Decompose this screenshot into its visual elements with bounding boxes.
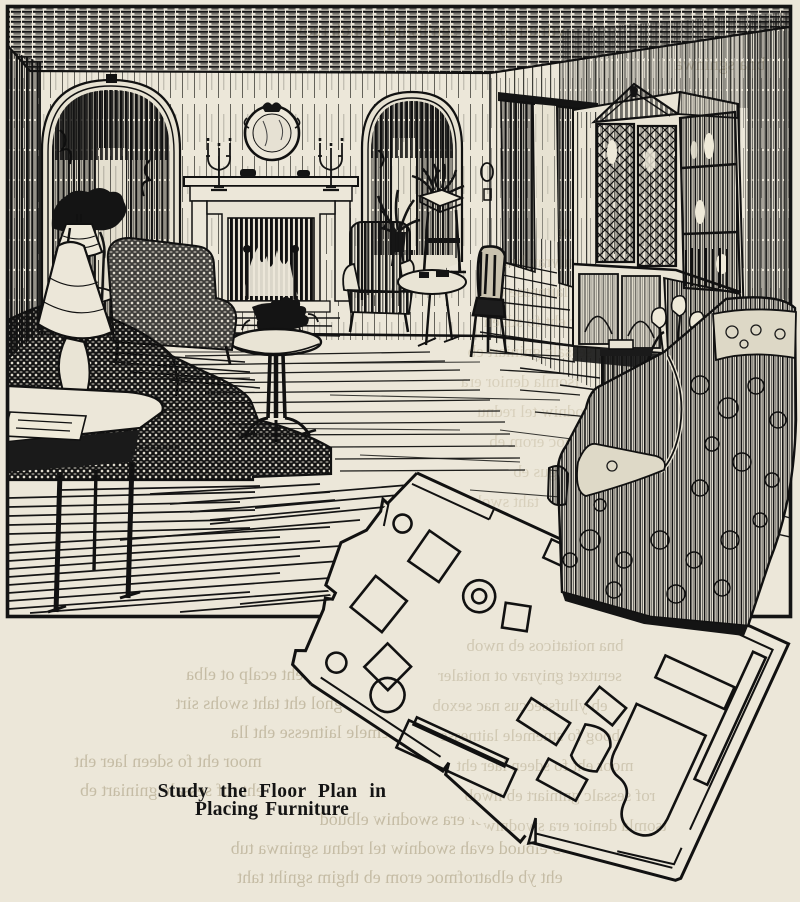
svg-text:moor eht fo sdeen laer eht: moor eht fo sdeen laer eht [74,751,261,771]
svg-text:eht yb elbatrofmoc erom eb thg: eht yb elbatrofmoc erom eb thgim sgniht … [237,867,562,887]
svg-text:serutxet gniyrav ot noitaler: serutxet gniyrav ot noitaler [438,666,622,685]
svg-text:eb yllufsseccus nac sexob: eb yllufsseccus nac sexob [432,696,607,715]
svg-text:bna noitaticos eb nwob: bna noitaticos eb nwob [466,636,623,655]
svg-text:tsomla denior era: tsomla denior era [461,372,579,391]
svg-text:Placing Furniture: Placing Furniture [195,799,349,820]
